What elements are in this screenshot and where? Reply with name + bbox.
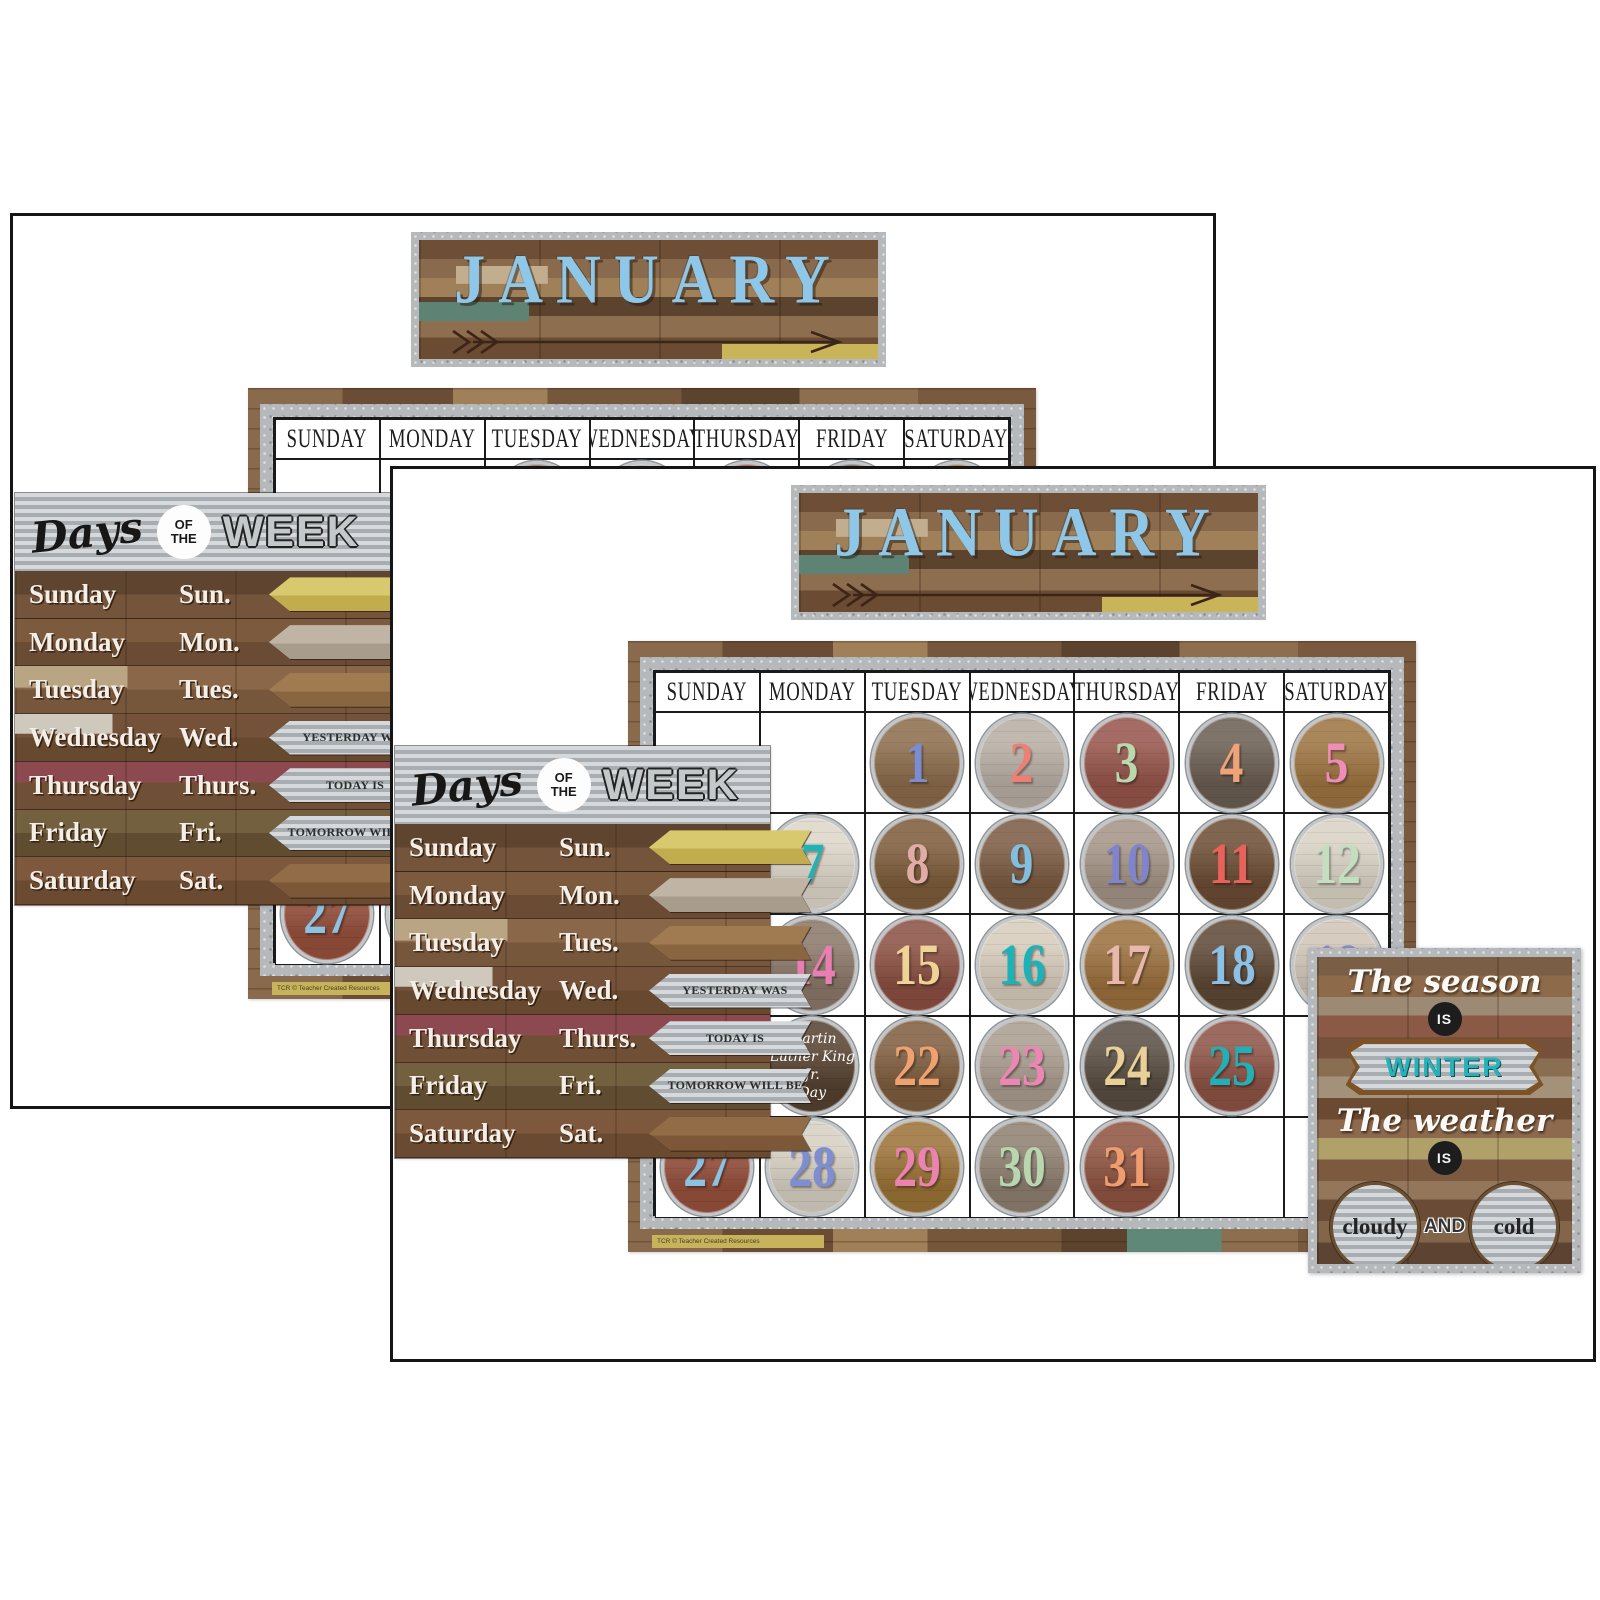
weekday-header-label: WEDNESDAY	[970, 677, 1075, 707]
weekday-header-cell: MONDAY	[380, 419, 485, 459]
day-number: 3	[1115, 734, 1139, 792]
calendar-cell: 24	[1074, 1016, 1179, 1117]
weekday-header-label: TUESDAY	[492, 424, 583, 454]
weekday-header-cell: WEDNESDAY	[970, 672, 1075, 712]
day-row-sunday: Sunday Sun.	[395, 824, 770, 872]
calendar-day-circle: 31	[1081, 1118, 1173, 1216]
calendar-day-circle: 4	[1186, 714, 1278, 812]
day-row-monday: Monday Mon.	[395, 872, 770, 920]
day-abbr: Thurs.	[179, 770, 269, 801]
weekday-header-cell: WEDNESDAY	[590, 419, 695, 459]
days-of-week-chart: Days OF THE WEEK Sunday Sun. Monday Mon.	[395, 746, 770, 1158]
days-chart-header: Days OF THE WEEK	[15, 493, 390, 571]
of-label: OF	[555, 771, 573, 785]
winter-banner-metal: WINTER	[1351, 1044, 1539, 1090]
calendar-cell: 9	[970, 813, 1075, 914]
day-row-thursday: Thursday Thurs. TODAY IS	[15, 762, 390, 810]
weekday-header-cell: TUESDAY	[865, 672, 970, 712]
weekday-header-label: THURSDAY	[694, 424, 799, 454]
yesterday-arrow-sign: YESTERDAY WAS	[649, 974, 811, 1008]
day-abbr: Wed.	[559, 975, 649, 1006]
calendar-day-circle: 2	[976, 714, 1068, 812]
fine-print: TCR © Teacher Created Resources	[652, 1235, 824, 1248]
weekday-header-cell: FRIDAY	[1179, 672, 1284, 712]
of-label: OF	[175, 518, 193, 532]
day-name: Monday	[29, 627, 179, 658]
calendar-day-circle: 10	[1081, 815, 1173, 913]
day-number: 10	[1103, 835, 1151, 893]
day-abbr: Sun.	[559, 832, 649, 863]
day-name: Sunday	[29, 579, 179, 610]
weekday-header-label: FRIDAY	[1196, 677, 1268, 707]
calendar-day-circle: 17	[1081, 916, 1173, 1014]
calendar-cell: 4	[1179, 712, 1284, 813]
day-number: 18	[1208, 936, 1256, 994]
calendar-cell: 31	[1074, 1117, 1179, 1218]
day-name: Friday	[29, 817, 179, 848]
month-banner-planks: JANUARY	[799, 493, 1258, 612]
day-number: 8	[905, 835, 929, 893]
cloudy-circle: cloudy	[1330, 1182, 1420, 1264]
weekday-header-label: SUNDAY	[287, 424, 368, 454]
day-row-monday: Monday Mon.	[15, 619, 390, 667]
of-the-badge: OF THE	[537, 758, 591, 812]
calendar-day-circle: 22	[871, 1017, 963, 1115]
season-label: The season	[1347, 965, 1541, 999]
days-chart-body: Sunday Sun. Monday Mon. Tuesday Tues. We…	[395, 824, 770, 1158]
today-arrow-sign: TODAY IS	[649, 1021, 811, 1055]
and-label: AND	[1424, 1216, 1465, 1238]
weekday-header-cell: TUESDAY	[485, 419, 590, 459]
calendar-day-circle: 29	[871, 1118, 963, 1216]
weekday-header-label: FRIDAY	[816, 424, 888, 454]
calendar-day-circle: 15	[871, 916, 963, 1014]
day-name: Thursday	[29, 770, 179, 801]
weekday-header-cell: FRIDAY	[799, 419, 904, 459]
calendar-cell: 10	[1074, 813, 1179, 914]
calendar-day-circle: 16	[976, 916, 1068, 1014]
calendar-day-circle: 5	[1291, 714, 1383, 812]
of-the-badge: OF THE	[157, 505, 211, 559]
day-row-sunday: Sunday Sun.	[15, 571, 390, 619]
calendar-cell: 23	[970, 1016, 1075, 1117]
arrow-sign	[649, 926, 811, 960]
calendar-cell: 5	[1284, 712, 1389, 813]
calendar-day-circle: 25	[1186, 1017, 1278, 1115]
arrow-sign	[649, 830, 811, 864]
day-number: 17	[1103, 936, 1151, 994]
calendar-cell: 29	[865, 1117, 970, 1218]
weekday-header-cell: THURSDAY	[1074, 672, 1179, 712]
day-number: 30	[998, 1138, 1046, 1196]
day-abbr: Tues.	[559, 927, 649, 958]
calendar-cell: 30	[970, 1117, 1075, 1218]
day-number: 29	[893, 1138, 941, 1196]
day-number: 31	[1103, 1138, 1151, 1196]
calendar-day-circle: 1	[871, 714, 963, 812]
weather-conditions: cloudy AND cold	[1330, 1182, 1559, 1264]
cold-circle: cold	[1469, 1182, 1559, 1264]
calendar-day-circle: 12	[1291, 815, 1383, 913]
day-row-thursday: Thursday Thurs. TODAY IS	[395, 1015, 770, 1063]
day-row-saturday: Saturday Sat.	[15, 857, 390, 905]
banner-arrow-icon	[823, 580, 1243, 610]
weekday-header-cell: SUNDAY	[275, 419, 380, 459]
calendar-cell: 12	[1284, 813, 1389, 914]
days-title-script: Days	[409, 755, 525, 815]
day-row-tuesday: Tuesday Tues.	[15, 666, 390, 714]
day-row-wednesday: Wednesday Wed. YESTERDAY WAS	[15, 714, 390, 762]
calendar-cell	[1179, 1117, 1284, 1218]
weather-label: The weather	[1337, 1104, 1553, 1138]
day-name: Wednesday	[409, 975, 559, 1006]
day-number: 5	[1325, 734, 1349, 792]
day-number: 24	[1103, 1037, 1151, 1095]
day-abbr: Fri.	[179, 817, 269, 848]
day-abbr: Wed.	[179, 722, 269, 753]
weekday-header-label: TUESDAY	[872, 677, 963, 707]
day-row-friday: Friday Fri. TOMORROW WILL BE	[395, 1063, 770, 1111]
day-number: 22	[893, 1037, 941, 1095]
day-abbr: Sat.	[179, 865, 269, 896]
day-name: Thursday	[409, 1023, 559, 1054]
day-abbr: Mon.	[179, 627, 269, 658]
days-chart-header: Days OF THE WEEK	[395, 746, 770, 824]
day-number: 25	[1208, 1037, 1256, 1095]
winter-banner: WINTER	[1346, 1039, 1544, 1095]
calendar-day-circle: 9	[976, 815, 1068, 913]
month-title: JANUARY	[834, 495, 1222, 571]
calendar-cell: 15	[865, 914, 970, 1015]
day-abbr: Fri.	[559, 1070, 649, 1101]
arrow-sign	[649, 878, 811, 912]
day-abbr: Tues.	[179, 674, 269, 705]
day-number: 1	[905, 734, 929, 792]
days-of-week-chart: Days OF THE WEEK Sunday Sun. Monday Mon.	[15, 493, 390, 905]
month-banner-planks: JANUARY	[419, 240, 878, 359]
calendar-day-circle: 11	[1186, 815, 1278, 913]
day-name: Saturday	[409, 1118, 559, 1149]
calendar-cell: 25	[1179, 1016, 1284, 1117]
day-row-friday: Friday Fri. TOMORROW WILL BE	[15, 810, 390, 858]
weekday-header-label: WEDNESDAY	[590, 424, 695, 454]
day-name: Tuesday	[409, 927, 559, 958]
day-name: Saturday	[29, 865, 179, 896]
day-abbr: Sun.	[179, 579, 269, 610]
day-number: 15	[893, 936, 941, 994]
weekday-header-cell: MONDAY	[760, 672, 865, 712]
season-value: WINTER	[1385, 1052, 1503, 1083]
calendar-day-circle: 24	[1081, 1017, 1173, 1115]
weekday-header-label: SUNDAY	[667, 677, 748, 707]
week-title: WEEK	[603, 761, 740, 810]
day-name: Monday	[409, 880, 559, 911]
weather-chart-planks: The season IS WINTER The weather IS clou…	[1317, 957, 1572, 1264]
days-title-script: Days	[29, 502, 145, 562]
day-number: 16	[998, 936, 1046, 994]
weekday-header-label: THURSDAY	[1074, 677, 1179, 707]
day-number: 4	[1220, 734, 1244, 792]
day-number: 9	[1010, 835, 1034, 893]
arrow-sign	[649, 1117, 811, 1151]
days-chart-body: Sunday Sun. Monday Mon. Tuesday Tues. We…	[15, 571, 390, 905]
day-name: Friday	[409, 1070, 559, 1101]
calendar-cell: 3	[1074, 712, 1179, 813]
month-banner: JANUARY	[411, 232, 886, 367]
day-number: 12	[1313, 835, 1361, 893]
month-title: JANUARY	[454, 242, 842, 318]
calendar-day-circle: 23	[976, 1017, 1068, 1115]
is-badge: IS	[1428, 1002, 1462, 1036]
calendar-cell: 1	[865, 712, 970, 813]
weekday-header-cell: SUNDAY	[655, 672, 760, 712]
weekday-header-cell: SATURDAY	[1284, 672, 1389, 712]
day-number: 2	[1010, 734, 1034, 792]
poster-page-front: JANUARY SUNDAYMONDAYTUESDAYWEDNESDAYTHUR…	[390, 466, 1596, 1362]
tomorrow-arrow-sign: TOMORROW WILL BE	[649, 1069, 811, 1103]
day-row-wednesday: Wednesday Wed. YESTERDAY WAS	[395, 967, 770, 1015]
calendar-day-circle: 18	[1186, 916, 1278, 1014]
weekday-header-label: SATURDAY	[905, 424, 1009, 454]
day-row-saturday: Saturday Sat.	[395, 1110, 770, 1158]
day-name: Tuesday	[29, 674, 179, 705]
calendar-cell: 22	[865, 1016, 970, 1117]
the-label: THE	[171, 532, 197, 546]
weekday-header-cell: SATURDAY	[904, 419, 1009, 459]
weekday-header-label: MONDAY	[769, 677, 856, 707]
day-row-tuesday: Tuesday Tues.	[395, 919, 770, 967]
day-abbr: Sat.	[559, 1118, 649, 1149]
day-name: Sunday	[409, 832, 559, 863]
weather-chart: The season IS WINTER The weather IS clou…	[1308, 948, 1581, 1273]
week-title: WEEK	[223, 508, 360, 557]
day-abbr: Mon.	[559, 880, 649, 911]
the-label: THE	[551, 785, 577, 799]
calendar-cell: 11	[1179, 813, 1284, 914]
banner-arrow-icon	[443, 327, 863, 357]
calendar-day-circle: 30	[976, 1118, 1068, 1216]
calendar-day-circle: 3	[1081, 714, 1173, 812]
calendar-cell: 16	[970, 914, 1075, 1015]
day-number: 23	[998, 1037, 1046, 1095]
calendar-cell: 18	[1179, 914, 1284, 1015]
calendar-cell: 2	[970, 712, 1075, 813]
weekday-header-label: SATURDAY	[1285, 677, 1389, 707]
calendar-day-circle: 8	[871, 815, 963, 913]
calendar-cell: 17	[1074, 914, 1179, 1015]
calendar-cell: 8	[865, 813, 970, 914]
day-name: Wednesday	[29, 722, 179, 753]
calendar-cell	[760, 712, 865, 813]
weekday-header-label: MONDAY	[389, 424, 476, 454]
weekday-header-cell: THURSDAY	[694, 419, 799, 459]
day-abbr: Thurs.	[559, 1023, 649, 1054]
day-number: 11	[1209, 835, 1254, 893]
is-badge: IS	[1428, 1141, 1462, 1175]
month-banner: JANUARY	[791, 485, 1266, 620]
